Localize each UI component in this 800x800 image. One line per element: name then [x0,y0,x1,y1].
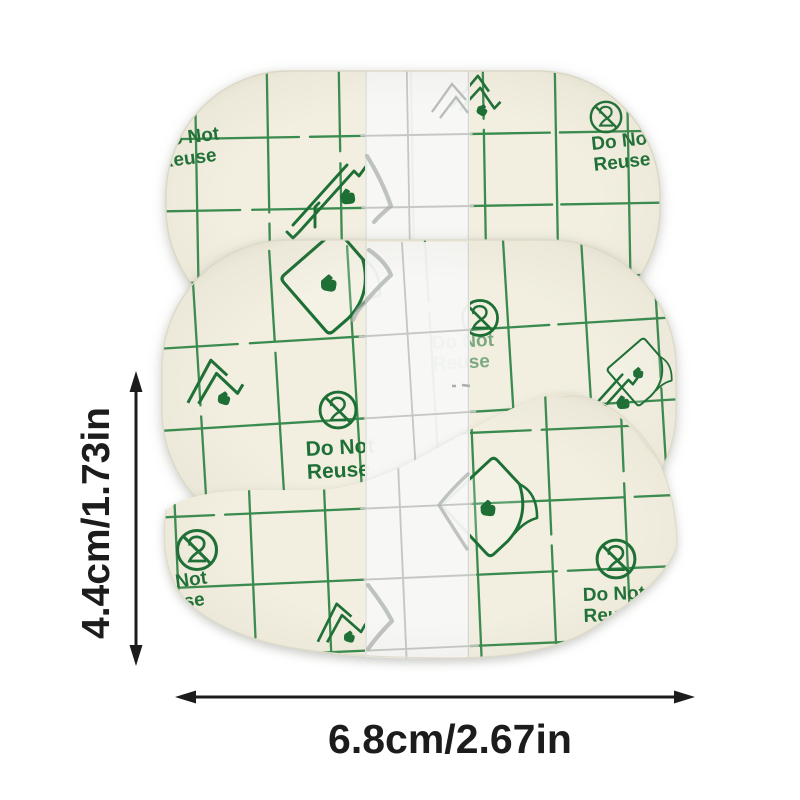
svg-text:6.8cm/2.67in: 6.8cm/2.67in [328,716,572,762]
svg-text:4.4cm/1.73in: 4.4cm/1.73in [75,407,118,639]
